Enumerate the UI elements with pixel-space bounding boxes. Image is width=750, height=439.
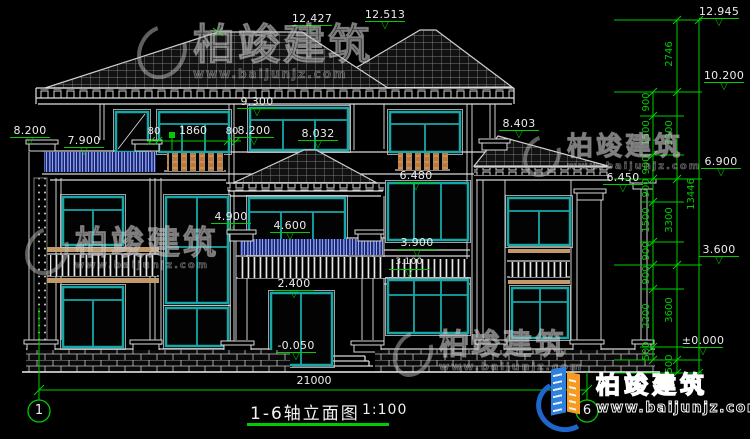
elevation-mark-stair-window: 4.900 <box>211 211 251 232</box>
elevation-mark-entrance: -0.050 <box>276 340 316 361</box>
dim-window-jamb-right: 80 <box>224 126 240 138</box>
brand-logo-url: www.baijunjz.com <box>596 400 750 416</box>
elevation-mark-railing-sill: 3.100 <box>389 257 429 278</box>
elevation-mark-center-window-head: 8.200 <box>234 125 274 146</box>
elevation-mark-balcony-rail: 3.900 <box>397 237 437 258</box>
brand-logo: 柏竣建筑 www.baijunjz.com <box>536 364 750 432</box>
dim-overall-width: 21000 <box>284 375 344 387</box>
elevation-mark-second-floor: 6.900 <box>701 156 741 177</box>
elevation-mark-wing-eave: 6.450 <box>603 172 643 193</box>
elevation-mark-ridge-right: 12.513 <box>365 9 405 30</box>
elevation-mark-door-head: 2.400 <box>274 278 314 299</box>
elevation-mark-ground-window-head: 3.600 <box>699 244 739 265</box>
elevation-mark-upper-eave: 9.300 <box>237 96 277 117</box>
elevation-drawing-sheet: 12.427 12.513 12.945 10.200 9.300 8.200 … <box>0 0 750 439</box>
elevation-mark-left-parapet: 8.200 <box>10 125 50 146</box>
elevation-mark-roof-top: 12.945 <box>699 6 739 27</box>
axis-bubble-1-label: 1 <box>28 404 50 418</box>
brand-logo-text: 柏竣建筑 <box>596 372 750 398</box>
dim-chain-inner-6: 900 <box>642 253 652 297</box>
elevation-mark-left-balcony: 7.900 <box>64 135 104 156</box>
elevation-mark-ground-datum: ±0.000 <box>683 335 723 356</box>
dim-window-width: 1860 <box>170 125 216 137</box>
elevation-mark-center-window-head-2: 8.032 <box>298 128 338 149</box>
dim-overall-height: 13446 <box>687 172 697 216</box>
elevation-mark-2f-window-head: 6.480 <box>396 170 436 191</box>
dim-window-jamb-left: 80 <box>146 126 162 138</box>
drawing-title: 1-6轴立面图 <box>250 399 360 424</box>
title-underline <box>247 423 389 426</box>
elevation-mark-main-eave: 10.200 <box>704 70 744 91</box>
drawing-scale: 1:100 <box>362 402 407 418</box>
dim-chain-outer-1: 3300 <box>665 111 675 155</box>
dim-chain-outer-2: 3300 <box>665 198 675 242</box>
elevation-mark-porch-window-head: 4.600 <box>270 220 310 241</box>
dim-chain-outer-3: 3600 <box>665 288 675 332</box>
brand-logo-icon <box>536 364 590 432</box>
dim-chain-outer-0: 2746 <box>665 32 675 76</box>
elevation-mark-ridge-left: 12.427 <box>292 13 332 34</box>
elevation-mark-wing-roof-top: 8.403 <box>499 118 539 139</box>
